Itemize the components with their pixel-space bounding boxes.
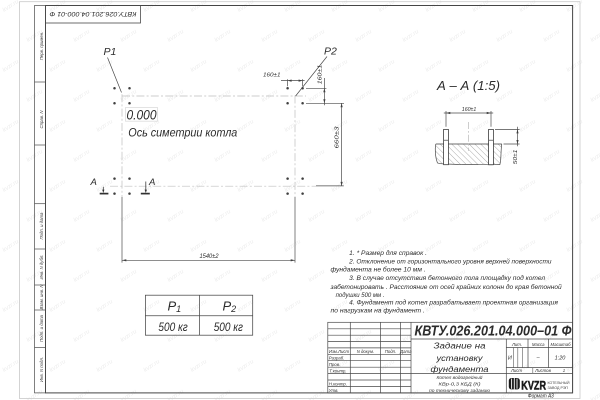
- svg-text:160±1: 160±1: [462, 107, 477, 113]
- svg-text:по техническому заданию: по техническому заданию: [429, 388, 491, 393]
- svg-text:Инв. N подл.: Инв. N подл.: [39, 357, 44, 382]
- svg-text:A: A: [90, 177, 97, 188]
- svg-text:Подп. и дата: Подп. и дата: [39, 212, 44, 240]
- svg-text:4. Фундамент под котел разраба: 4. Фундамент под котел разрабатывает про…: [349, 300, 558, 307]
- svg-text:Н.контр.: Н.контр.: [329, 382, 347, 387]
- svg-text:КОТЕЛЬНЫЙ: КОТЕЛЬНЫЙ: [548, 381, 570, 385]
- svg-text:500 кг: 500 кг: [158, 320, 187, 334]
- svg-text:фундамента не более 10 мм .: фундамента не более 10 мм .: [331, 267, 426, 274]
- svg-text:КВр-0,3 КБД (К): КВр-0,3 КБД (К): [439, 381, 482, 386]
- svg-text:КВТУ.026.201.04.000-01 Ф: КВТУ.026.201.04.000-01 Ф: [50, 10, 137, 17]
- svg-text:Лит.: Лит.: [511, 342, 522, 347]
- svg-text:ЗАВОД РЭП: ЗАВОД РЭП: [548, 386, 569, 390]
- svg-text:КВТУ.026.201.04.000–01 Ф: КВТУ.026.201.04.000–01 Ф: [415, 323, 572, 340]
- svg-text:1:20: 1:20: [555, 356, 567, 362]
- svg-text:Формат А3: Формат А3: [528, 394, 554, 400]
- svg-text:160±1: 160±1: [263, 73, 281, 79]
- svg-text:Листов: Листов: [534, 368, 551, 373]
- svg-text:фундамента: фундамента: [431, 365, 490, 374]
- svg-text:Масса: Масса: [532, 342, 545, 347]
- svg-text:Задание на: Задание на: [434, 341, 487, 350]
- svg-text:забетонировать . Расстояние от: забетонировать . Расстояние от осей край…: [329, 284, 562, 291]
- svg-text:Инв. N дубл.: Инв. N дубл.: [39, 255, 44, 280]
- svg-text:Лист: Лист: [510, 368, 522, 373]
- svg-text:подушки 500 мм .: подушки 500 мм .: [336, 292, 385, 299]
- svg-text:660±3: 660±3: [335, 125, 341, 148]
- svg-text:2. Отклонение от горизонтально: 2. Отклонение от горизонтального уровня …: [348, 259, 552, 266]
- svg-text:Подп.: Подп.: [385, 349, 396, 354]
- svg-text:Ось симетрии котла: Ось симетрии котла: [128, 127, 237, 139]
- svg-text:N докум.: N докум.: [357, 349, 374, 354]
- svg-text:KVZR: KVZR: [521, 380, 546, 392]
- svg-text:3. В случае отсутствия бетонно: 3. В случае отсутствия бетонного пола пл…: [349, 275, 545, 282]
- svg-text:Справ. N: Справ. N: [39, 110, 44, 129]
- svg-text:Котел водогрейный: Котел водогрейный: [437, 374, 484, 380]
- svg-text:160±1: 160±1: [317, 65, 323, 85]
- svg-text:Масштаб: Масштаб: [550, 342, 571, 347]
- svg-text:500 кг: 500 кг: [214, 320, 243, 334]
- svg-text:50±1: 50±1: [513, 150, 519, 165]
- svg-text:Взам. инв. N: Взам. инв. N: [39, 284, 44, 310]
- svg-text:0.000: 0.000: [127, 107, 157, 123]
- svg-text:Т.контр.: Т.контр.: [329, 368, 346, 373]
- svg-text:по нагрузкам на фундамент .: по нагрузкам на фундамент .: [331, 308, 425, 315]
- svg-text:A: A: [148, 177, 155, 188]
- svg-text:P2: P2: [324, 46, 337, 58]
- svg-text:И: И: [508, 356, 512, 362]
- svg-text:Подп. и дата: Подп. и дата: [39, 314, 44, 342]
- svg-text:Утв.: Утв.: [329, 388, 339, 393]
- svg-text:1. * Размер для справок .: 1. * Размер для справок .: [349, 250, 427, 257]
- svg-text:1540±2: 1540±2: [200, 254, 220, 260]
- svg-text:Разраб.: Разраб.: [329, 356, 345, 361]
- svg-text:установку: установку: [435, 354, 483, 363]
- svg-text:Дата: Дата: [399, 349, 412, 354]
- svg-text:А – А (1:5): А – А (1:5): [436, 79, 500, 93]
- svg-text:Перв. примен.: Перв. примен.: [39, 32, 44, 61]
- svg-text:Пров.: Пров.: [329, 362, 340, 367]
- svg-text:Изм.Лист: Изм.Лист: [329, 349, 350, 354]
- svg-text:P1: P1: [104, 46, 117, 58]
